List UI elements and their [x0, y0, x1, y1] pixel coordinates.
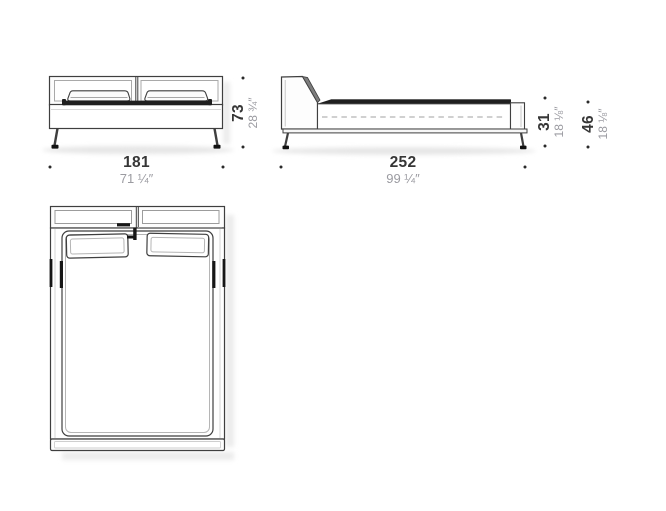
- top-fitting-mark: [50, 259, 53, 287]
- top-side-shadow: [226, 215, 234, 447]
- front-mattress-strip: [62, 101, 212, 106]
- front-width-dimension: 181 71 ¼″: [76, 155, 197, 186]
- diagram-linework: [0, 0, 666, 511]
- top-pillow-left: [66, 234, 128, 258]
- top-center-mark: [127, 236, 137, 239]
- front-bed-frame: [50, 105, 223, 129]
- front-strip-endcap-right: [208, 99, 212, 105]
- front-pillow-left: [68, 91, 130, 101]
- side-leg-right: [520, 133, 527, 149]
- top-mattress: [62, 231, 213, 436]
- side-top-height-inch: 18 ⅛″: [597, 96, 609, 152]
- front-floor-shadow: [42, 146, 234, 154]
- side-headboard: [282, 77, 318, 130]
- side-end-panel: [511, 103, 525, 130]
- dimension-dot: [49, 166, 52, 169]
- front-strip-endcap-left: [62, 99, 66, 105]
- top-view-drawing: [50, 207, 234, 461]
- front-leg-left: [52, 129, 59, 149]
- top-fitting-mark: [60, 261, 63, 288]
- top-footboard-inner: [55, 442, 221, 449]
- front-width-inch: 71 ¼″: [76, 172, 197, 186]
- side-base-rail: [283, 129, 527, 133]
- side-length-cm: 252: [343, 155, 463, 171]
- front-leg-right: [214, 129, 221, 149]
- front-height-dimension: 73 28 ¾″: [231, 68, 265, 158]
- top-fitting-mark: [212, 261, 215, 288]
- side-leg-left: [283, 133, 290, 149]
- top-bottom-shadow: [62, 452, 234, 460]
- side-rail-height-inch: 18 ⅛″: [553, 94, 565, 150]
- side-top-height-cm: 46: [581, 96, 597, 152]
- front-width-cm: 181: [76, 155, 197, 171]
- bed-dimension-diagram: 181 71 ¼″ 252 99 ¼″ 73 28 ¾″ 31 18 ⅛″ 46…: [0, 0, 666, 511]
- top-headboard-panel-right: [143, 211, 220, 224]
- dimension-dot: [280, 166, 283, 169]
- side-length-inch: 99 ¼″: [343, 172, 463, 186]
- front-height-cm: 73: [231, 68, 247, 158]
- side-rail-height-cm: 31: [537, 94, 553, 150]
- top-headboard-panel-left: [55, 211, 132, 224]
- front-pillow-right: [145, 91, 208, 101]
- top-pillow-right: [147, 233, 209, 257]
- side-mattress-strip2: [331, 99, 511, 103]
- top-center-mark: [117, 223, 130, 226]
- dimension-dot: [222, 166, 225, 169]
- front-height-inch: 28 ¾″: [247, 68, 259, 158]
- dimension-dot: [524, 166, 527, 169]
- side-rail-height-dimension: 31 18 ⅛″: [537, 94, 569, 150]
- side-top-height-dimension: 46 18 ⅛″: [581, 96, 613, 152]
- top-fitting-mark: [223, 259, 226, 287]
- front-side-shadow: [223, 82, 230, 144]
- side-length-dimension: 252 99 ¼″: [343, 155, 463, 186]
